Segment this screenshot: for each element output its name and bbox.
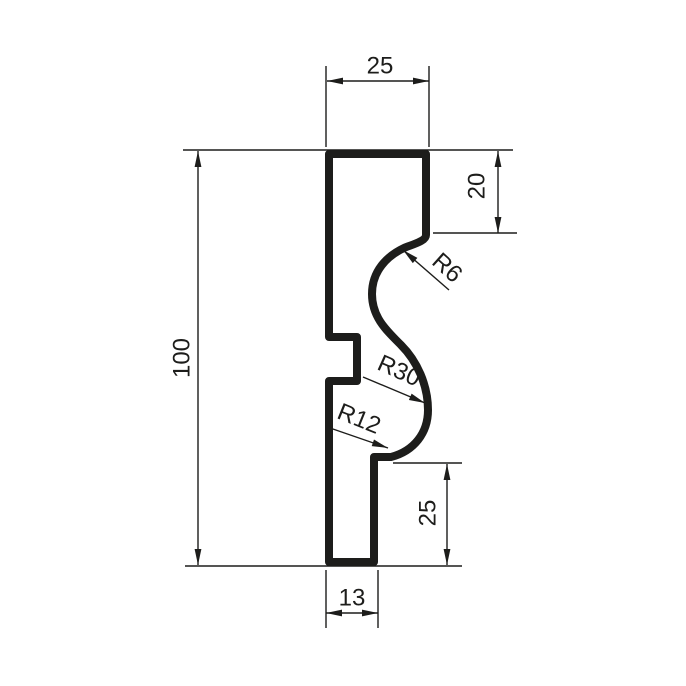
technical-drawing: 25 100 20 25 13 R6 R30 — [0, 0, 686, 686]
dim-upper-right-height: 20 — [464, 151, 502, 233]
arrowhead-left — [327, 78, 343, 85]
radius-callout-r12: R12 — [330, 398, 388, 448]
arrowhead-top — [495, 151, 502, 167]
radius-label-r30: R30 — [373, 350, 424, 393]
arrowhead — [372, 440, 388, 449]
dim-label-upper-right-height: 20 — [464, 173, 491, 200]
dim-label-top-width: 25 — [367, 53, 394, 80]
arrowhead-top — [444, 464, 451, 480]
dim-top-width: 25 — [327, 53, 429, 85]
arrowhead — [409, 394, 425, 403]
extension-lines — [183, 66, 517, 628]
dim-overall-height: 100 — [169, 151, 202, 565]
arrowhead-bottom — [444, 549, 451, 565]
dim-lower-right-height: 25 — [415, 464, 451, 565]
arrowhead-bottom — [495, 217, 502, 233]
radius-label-r12: R12 — [334, 398, 385, 440]
profile-outline — [329, 154, 428, 562]
dim-label-bottom-width: 13 — [339, 585, 366, 612]
arrowhead-right — [413, 78, 429, 85]
radius-label-r6: R6 — [427, 248, 468, 289]
arrowhead-bottom — [195, 549, 202, 565]
dim-label-overall-height: 100 — [169, 338, 196, 378]
arrowhead-top — [195, 151, 202, 167]
radius-callout-r6: R6 — [403, 248, 467, 290]
drawing-page: 25 100 20 25 13 R6 R30 — [0, 0, 686, 686]
dim-label-lower-right-height: 25 — [415, 500, 442, 527]
dim-bottom-width: 13 — [326, 585, 378, 617]
